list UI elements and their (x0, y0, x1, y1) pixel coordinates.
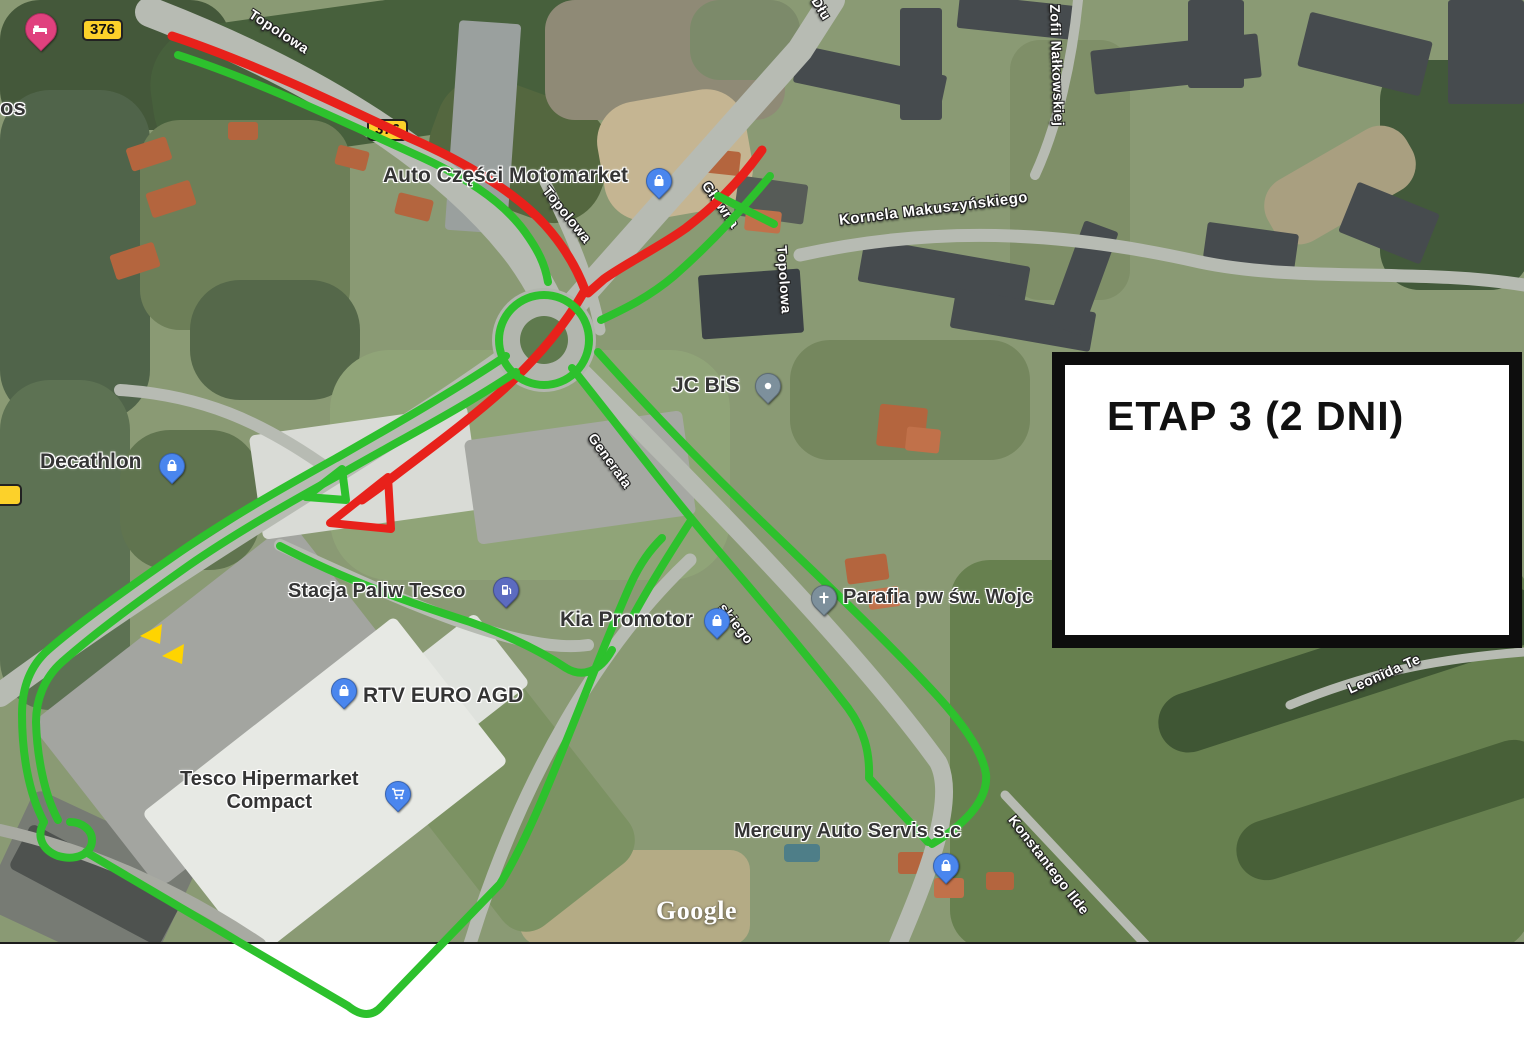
terrain-patch (699, 148, 741, 176)
poi-label-kia-promotor[interactable]: Kia Promotor (560, 608, 693, 632)
cart-marker-icon-tesco[interactable] (384, 780, 412, 818)
terrain-patch (784, 844, 820, 862)
terrain-patch (905, 426, 941, 453)
terrain-patch (744, 208, 782, 234)
poi-label-tesco-line1: Tesco Hipermarket (180, 768, 359, 791)
shopping-marker-icon-rtv[interactable] (330, 677, 358, 715)
terrain-patch (1188, 0, 1244, 88)
google-watermark: Google (656, 896, 737, 926)
street-label-topolowa-3: Topolowa (774, 245, 795, 314)
poi-label-tesco-hipermarket[interactable]: Tesco Hipermarket Compact (180, 768, 359, 814)
lodging-marker-icon[interactable] (24, 12, 58, 58)
stage-title-box: ETAP 3 (2 DNI) (1052, 352, 1522, 648)
poi-label-tesco-line2: Compact (180, 791, 359, 814)
route-shield-fragment (0, 484, 22, 506)
shopping-bag-icon (651, 173, 667, 189)
route-shield-376-a: 376 (82, 19, 123, 41)
poi-label-stacja-paliw[interactable]: Stacja Paliw Tesco (288, 580, 466, 603)
poi-label-rtv-euro-agd[interactable]: RTV EURO AGD (363, 684, 523, 708)
poi-label-motomarket[interactable]: Auto Części Motomarket (383, 164, 628, 188)
stage-title-text: ETAP 3 (2 DNI) (1065, 365, 1509, 440)
terrain-patch (394, 192, 434, 222)
terrain-patch (900, 8, 942, 120)
cross-icon (816, 590, 832, 606)
bed-icon (32, 20, 48, 36)
poi-label-jcbis[interactable]: JC BiS (672, 374, 740, 398)
terrain-patch (228, 122, 258, 140)
street-label-d-fragment: Dłu (808, 0, 834, 23)
dot-icon (760, 378, 776, 394)
fuel-pump-icon (498, 582, 514, 598)
terrain-patch (1297, 12, 1433, 97)
terrain-patch (844, 553, 889, 585)
generic-marker-icon-jcbis[interactable] (754, 372, 782, 410)
shopping-marker-icon-decathlon[interactable] (158, 452, 186, 490)
poi-label-mercury[interactable]: Mercury Auto Servis s.c (734, 820, 961, 843)
shopping-marker-icon-kia[interactable] (703, 607, 731, 645)
terrain-patch (986, 872, 1014, 890)
poi-label-parafia[interactable]: Parafia pw św. Wojc (843, 586, 1033, 609)
shopping-cart-icon (390, 786, 406, 802)
poi-label-decathlon[interactable]: Decathlon (40, 450, 142, 474)
annotated-map-canvas: Topolowa Topolowa Topolowa Kornela Makus… (0, 0, 1524, 1052)
terrain-patch (1448, 0, 1524, 104)
shopping-bag-icon (709, 613, 725, 629)
street-label-makuszynskiego: Kornela Makuszyńskiego (838, 189, 1029, 229)
shopping-bag-icon (336, 683, 352, 699)
shopping-bag-icon (164, 458, 180, 474)
church-marker-icon[interactable] (810, 584, 838, 622)
route-shield-376-b: 376 (367, 119, 408, 141)
terrain-patch (690, 0, 800, 80)
shopping-bag-icon (938, 858, 954, 874)
shopping-marker-icon-mercury[interactable] (932, 852, 960, 890)
terrain-patch (898, 852, 934, 874)
shopping-marker-icon-motomarket[interactable] (645, 167, 673, 205)
terrain-patch (190, 280, 360, 400)
poi-label-os[interactable]: os (0, 95, 26, 121)
fuel-marker-icon[interactable] (492, 576, 520, 614)
